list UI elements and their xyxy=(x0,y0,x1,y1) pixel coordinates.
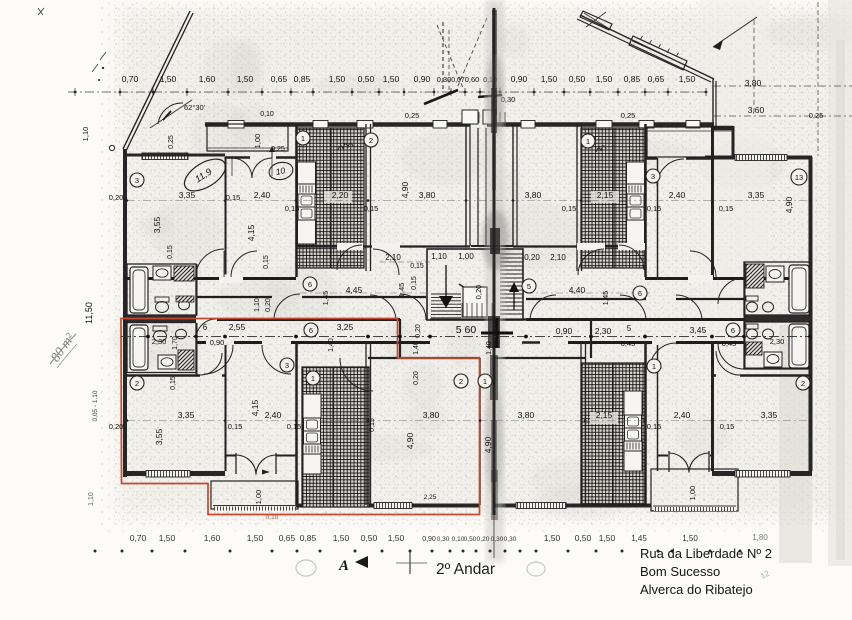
svg-text:Alverca do Ribatejo: Alverca do Ribatejo xyxy=(640,582,753,597)
svg-text:1,50: 1,50 xyxy=(159,533,176,543)
svg-text:4,90: 4,90 xyxy=(483,436,493,453)
svg-text:0,70: 0,70 xyxy=(122,74,139,84)
svg-text:0,25: 0,25 xyxy=(621,111,636,120)
svg-text:3,35: 3,35 xyxy=(761,410,778,420)
svg-text:1,50: 1,50 xyxy=(682,534,698,543)
svg-text:2,25: 2,25 xyxy=(424,494,437,501)
svg-text:3,45: 3,45 xyxy=(690,325,707,335)
svg-text:0,45: 0,45 xyxy=(621,339,636,348)
svg-text:1,10: 1,10 xyxy=(81,127,90,142)
svg-text:1,40: 1,40 xyxy=(486,341,493,355)
svg-text:0,30: 0,30 xyxy=(491,536,504,543)
svg-text:1,60: 1,60 xyxy=(204,533,221,543)
svg-text:3,60: 3,60 xyxy=(748,105,765,115)
svg-text:3,35: 3,35 xyxy=(178,410,195,420)
svg-text:2,30: 2,30 xyxy=(152,337,167,346)
svg-text:0,90: 0,90 xyxy=(414,74,431,84)
svg-text:0,20: 0,20 xyxy=(265,298,272,312)
svg-text:1,50: 1,50 xyxy=(544,533,561,543)
svg-text:4,90: 4,90 xyxy=(784,196,794,213)
svg-text:0,15: 0,15 xyxy=(228,422,243,431)
svg-text:2,15: 2,15 xyxy=(597,190,614,200)
svg-text:3,55: 3,55 xyxy=(154,428,164,445)
svg-text:0,15: 0,15 xyxy=(719,204,734,213)
svg-text:3: 3 xyxy=(651,172,655,181)
svg-text:3,80: 3,80 xyxy=(518,410,535,420)
svg-text:0,50: 0,50 xyxy=(569,74,586,84)
svg-text:1,10: 1,10 xyxy=(88,492,95,506)
svg-text:0,15: 0,15 xyxy=(170,376,177,390)
svg-text:62°30': 62°30' xyxy=(184,103,206,112)
svg-text:1,50: 1,50 xyxy=(329,74,346,84)
svg-text:1,50: 1,50 xyxy=(388,533,405,543)
svg-text:6: 6 xyxy=(731,326,735,335)
svg-text:2,55: 2,55 xyxy=(229,322,246,332)
svg-text:Bom Sucesso: Bom Sucesso xyxy=(640,564,720,579)
svg-text:3,35: 3,35 xyxy=(748,190,765,200)
svg-text:0,20: 0,20 xyxy=(413,371,420,385)
svg-text:0,15: 0,15 xyxy=(562,204,577,213)
svg-text:3,80: 3,80 xyxy=(745,78,762,88)
svg-text:3: 3 xyxy=(285,361,289,370)
svg-text:0,07: 0,07 xyxy=(451,77,465,84)
svg-text:0,45: 0,45 xyxy=(722,339,737,348)
svg-text:1,50: 1,50 xyxy=(679,74,696,84)
svg-text:1: 1 xyxy=(311,374,315,383)
svg-text:1,50: 1,50 xyxy=(599,533,616,543)
svg-text:1: 1 xyxy=(652,362,656,371)
svg-text:0,50: 0,50 xyxy=(358,74,375,84)
svg-text:1,00: 1,00 xyxy=(254,490,263,505)
svg-text:1,50: 1,50 xyxy=(333,533,350,543)
svg-text:1,60: 1,60 xyxy=(199,74,216,84)
svg-text:0,90: 0,90 xyxy=(556,326,573,336)
svg-text:0,15: 0,15 xyxy=(285,204,300,213)
svg-text:0,05 - 1,10: 0,05 - 1,10 xyxy=(92,390,99,421)
svg-text:1,50: 1,50 xyxy=(383,74,400,84)
svg-text:0,15: 0,15 xyxy=(410,263,424,270)
svg-text:1: 1 xyxy=(483,377,487,386)
svg-text:0,90: 0,90 xyxy=(511,74,528,84)
svg-text:1,50: 1,50 xyxy=(237,74,254,84)
svg-text:3,25: 3,25 xyxy=(337,322,354,332)
svg-text:2,40: 2,40 xyxy=(265,410,282,420)
svg-text:0,25: 0,25 xyxy=(168,135,175,149)
svg-text:3,80: 3,80 xyxy=(423,410,440,420)
svg-text:2,15: 2,15 xyxy=(596,410,613,420)
svg-text:3,80: 3,80 xyxy=(525,190,542,200)
svg-text:4,15: 4,15 xyxy=(246,224,256,241)
svg-text:0,15: 0,15 xyxy=(287,422,302,431)
svg-text:4,90: 4,90 xyxy=(405,432,415,449)
svg-text:0,20: 0,20 xyxy=(109,422,124,431)
svg-text:1,00: 1,00 xyxy=(458,252,474,261)
svg-text:0,85: 0,85 xyxy=(294,74,311,84)
svg-text:2º Andar: 2º Andar xyxy=(436,561,495,578)
svg-text:0,65: 0,65 xyxy=(648,74,665,84)
svg-text:3,55: 3,55 xyxy=(152,216,162,233)
svg-text:0,25: 0,25 xyxy=(405,111,420,120)
svg-text:0,50: 0,50 xyxy=(361,533,378,543)
svg-text:3,80: 3,80 xyxy=(419,190,436,200)
svg-text:0,15: 0,15 xyxy=(720,422,735,431)
svg-text:0,20: 0,20 xyxy=(109,193,124,202)
svg-text:0,50: 0,50 xyxy=(464,536,477,543)
svg-text:1,45: 1,45 xyxy=(631,534,647,543)
svg-text:2,40: 2,40 xyxy=(254,190,271,200)
svg-text:2: 2 xyxy=(135,379,139,388)
svg-text:4,15: 4,15 xyxy=(250,399,260,416)
svg-text:1,50: 1,50 xyxy=(596,74,613,84)
svg-text:0,50: 0,50 xyxy=(575,533,592,543)
svg-text:0,15: 0,15 xyxy=(364,204,379,213)
svg-text:1,40: 1,40 xyxy=(413,341,420,355)
svg-text:A: A xyxy=(338,558,349,574)
svg-text:1,00: 1,00 xyxy=(688,486,697,501)
svg-text:1,50: 1,50 xyxy=(247,533,264,543)
svg-text:3: 3 xyxy=(135,176,139,185)
svg-text:2,30: 2,30 xyxy=(770,337,785,346)
svg-text:0,25: 0,25 xyxy=(809,111,824,120)
svg-text:0,60: 0,60 xyxy=(465,75,480,84)
svg-text:5: 5 xyxy=(527,282,531,291)
svg-text:2: 2 xyxy=(801,379,805,388)
svg-text:0,15: 0,15 xyxy=(167,245,174,259)
svg-text:2,40: 2,40 xyxy=(674,410,691,420)
svg-text:0,10: 0,10 xyxy=(260,111,274,118)
svg-text:1,80: 1,80 xyxy=(752,533,768,542)
svg-text:1: 1 xyxy=(301,134,305,143)
svg-text:0,15: 0,15 xyxy=(263,255,270,269)
svg-text:0,20: 0,20 xyxy=(474,285,483,300)
svg-text:4,90: 4,90 xyxy=(400,181,410,198)
svg-text:1,00: 1,00 xyxy=(253,134,262,149)
svg-text:1,45: 1,45 xyxy=(397,283,406,298)
svg-text:6: 6 xyxy=(203,323,208,332)
svg-text:Rua da Liberdade Nº 2: Rua da Liberdade Nº 2 xyxy=(640,546,772,561)
svg-text:0,10: 0,10 xyxy=(266,514,279,521)
svg-text:11,50: 11,50 xyxy=(84,302,94,324)
svg-text:0,20: 0,20 xyxy=(477,536,490,543)
svg-text:0,65: 0,65 xyxy=(271,74,288,84)
svg-text:6: 6 xyxy=(308,280,312,289)
svg-text:1,10: 1,10 xyxy=(254,298,261,312)
svg-text:2: 2 xyxy=(369,136,373,145)
svg-text:0,15: 0,15 xyxy=(226,193,241,202)
svg-text:1,50: 1,50 xyxy=(541,74,558,84)
svg-text:13: 13 xyxy=(795,173,803,182)
svg-text:2: 2 xyxy=(459,377,463,386)
svg-text:1,40: 1,40 xyxy=(328,338,335,352)
svg-text:0,15: 0,15 xyxy=(647,422,662,431)
svg-text:4,40: 4,40 xyxy=(569,285,586,295)
svg-text:0,90: 0,90 xyxy=(422,536,436,543)
svg-text:1: 1 xyxy=(586,137,590,146)
svg-text:6: 6 xyxy=(638,289,642,298)
svg-text:3,35: 3,35 xyxy=(179,190,196,200)
svg-text:1,45: 1,45 xyxy=(601,291,610,306)
svg-text:2,20: 2,20 xyxy=(332,190,349,200)
svg-text:4,45: 4,45 xyxy=(346,285,363,295)
svg-text:2,30: 2,30 xyxy=(595,326,612,336)
svg-text:1,70: 1,70 xyxy=(172,336,179,350)
svg-text:0,15: 0,15 xyxy=(647,204,662,213)
svg-text:0,85: 0,85 xyxy=(300,533,317,543)
svg-text:0,20: 0,20 xyxy=(524,253,540,262)
svg-text:0,65: 0,65 xyxy=(279,533,296,543)
svg-text:0,30: 0,30 xyxy=(504,536,517,543)
svg-text:0,20: 0,20 xyxy=(415,324,422,338)
svg-text:0,15: 0,15 xyxy=(411,276,418,290)
svg-text:0,30: 0,30 xyxy=(437,536,450,543)
svg-text:1,10: 1,10 xyxy=(431,252,447,261)
svg-text:0,15: 0,15 xyxy=(369,418,376,432)
svg-text:5: 5 xyxy=(627,324,632,333)
svg-text:2,40: 2,40 xyxy=(669,190,686,200)
svg-text:5 60: 5 60 xyxy=(456,324,477,336)
svg-text:2,10: 2,10 xyxy=(550,253,566,262)
svg-text:0,85: 0,85 xyxy=(624,74,641,84)
svg-text:6: 6 xyxy=(309,326,313,335)
svg-text:0,90: 0,90 xyxy=(210,338,225,347)
svg-text:0,70: 0,70 xyxy=(130,533,147,543)
svg-text:2,10: 2,10 xyxy=(385,253,401,262)
